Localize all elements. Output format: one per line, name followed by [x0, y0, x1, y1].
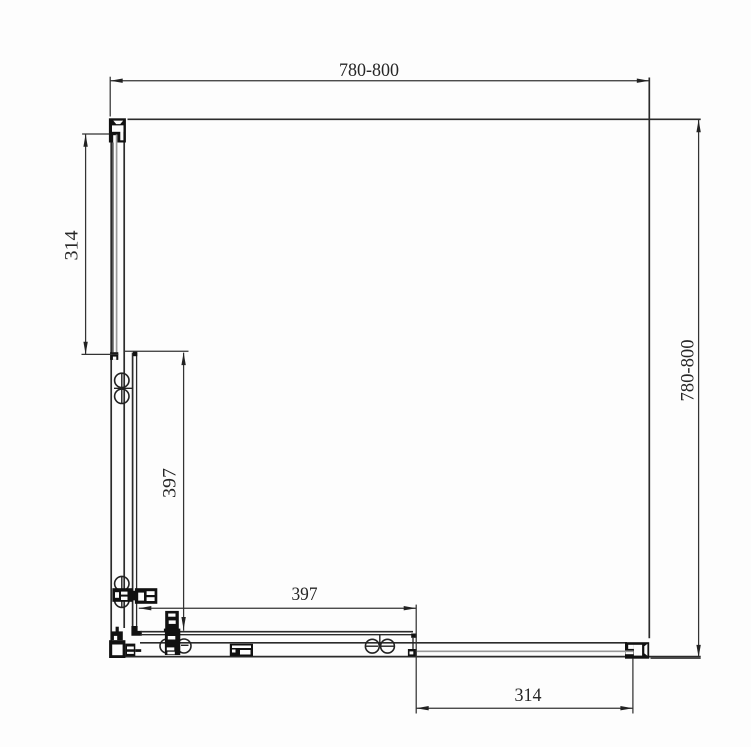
- svg-text:397: 397: [160, 468, 181, 498]
- svg-text:314: 314: [515, 685, 542, 706]
- svg-text:780-800: 780-800: [339, 60, 399, 81]
- svg-text:314: 314: [62, 230, 83, 261]
- svg-text:780-800: 780-800: [678, 340, 699, 402]
- svg-text:397: 397: [292, 584, 318, 605]
